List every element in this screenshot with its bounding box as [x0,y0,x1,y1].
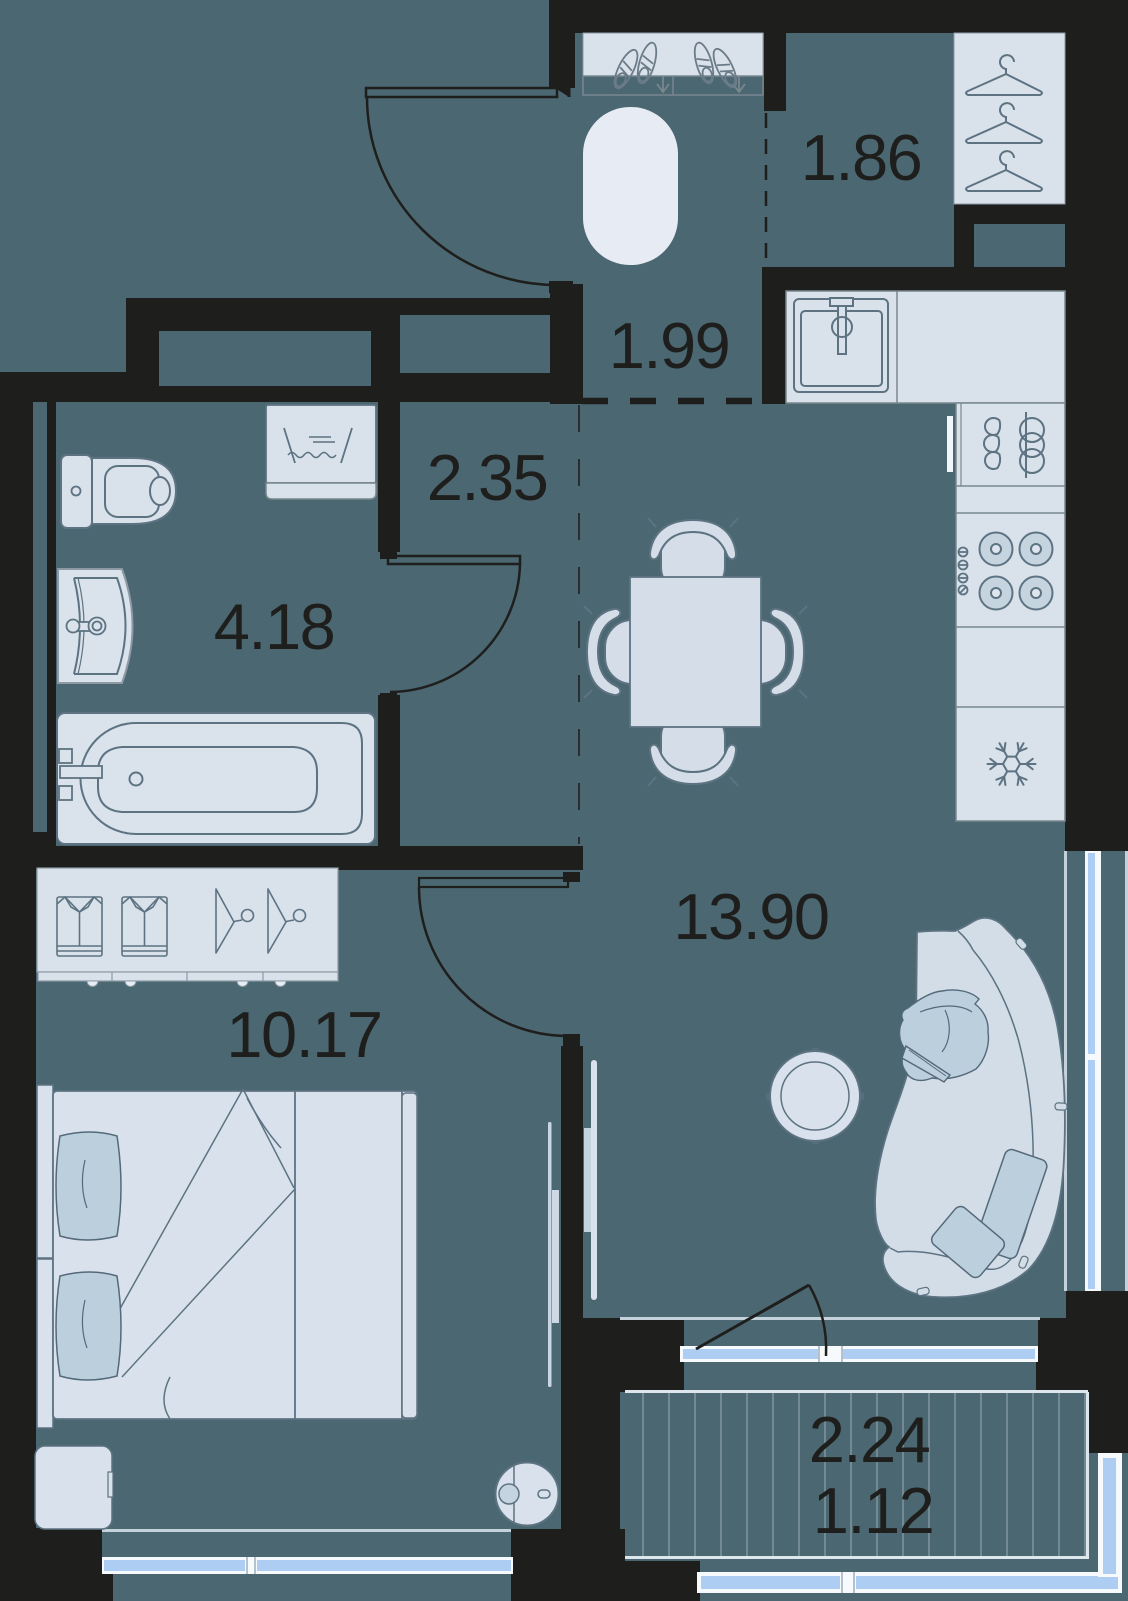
svg-text:2.35: 2.35 [427,441,548,514]
svg-text:1.99: 1.99 [609,309,730,382]
svg-text:2.24: 2.24 [809,1403,930,1476]
svg-text:10.17: 10.17 [226,998,381,1071]
svg-text:1.86: 1.86 [801,121,922,194]
svg-text:4.18: 4.18 [214,590,335,663]
svg-text:1.12: 1.12 [813,1474,934,1547]
svg-text:13.90: 13.90 [673,880,828,953]
